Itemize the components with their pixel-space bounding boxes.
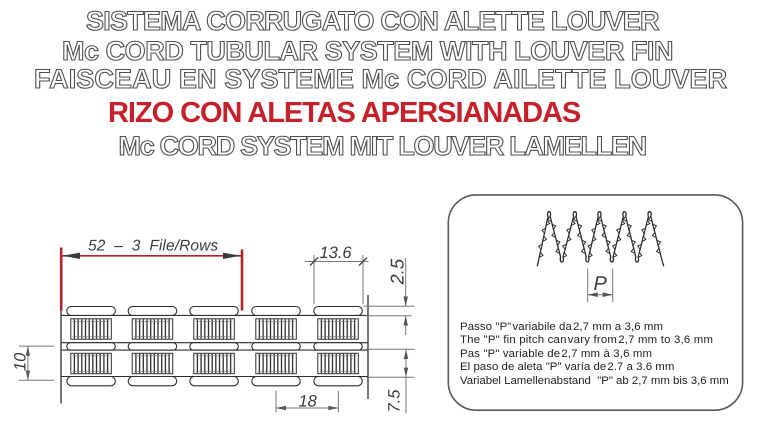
svg-text:10: 10	[12, 352, 30, 371]
svg-text:7.5: 7.5	[386, 389, 404, 413]
svg-text:P: P	[594, 273, 608, 295]
svg-text:2.5: 2.5	[387, 258, 408, 285]
svg-text:13.6: 13.6	[320, 244, 353, 262]
svg-text:18: 18	[299, 393, 318, 411]
svg-text:52 – 3 File/Rows: 52 – 3 File/Rows	[88, 238, 218, 255]
